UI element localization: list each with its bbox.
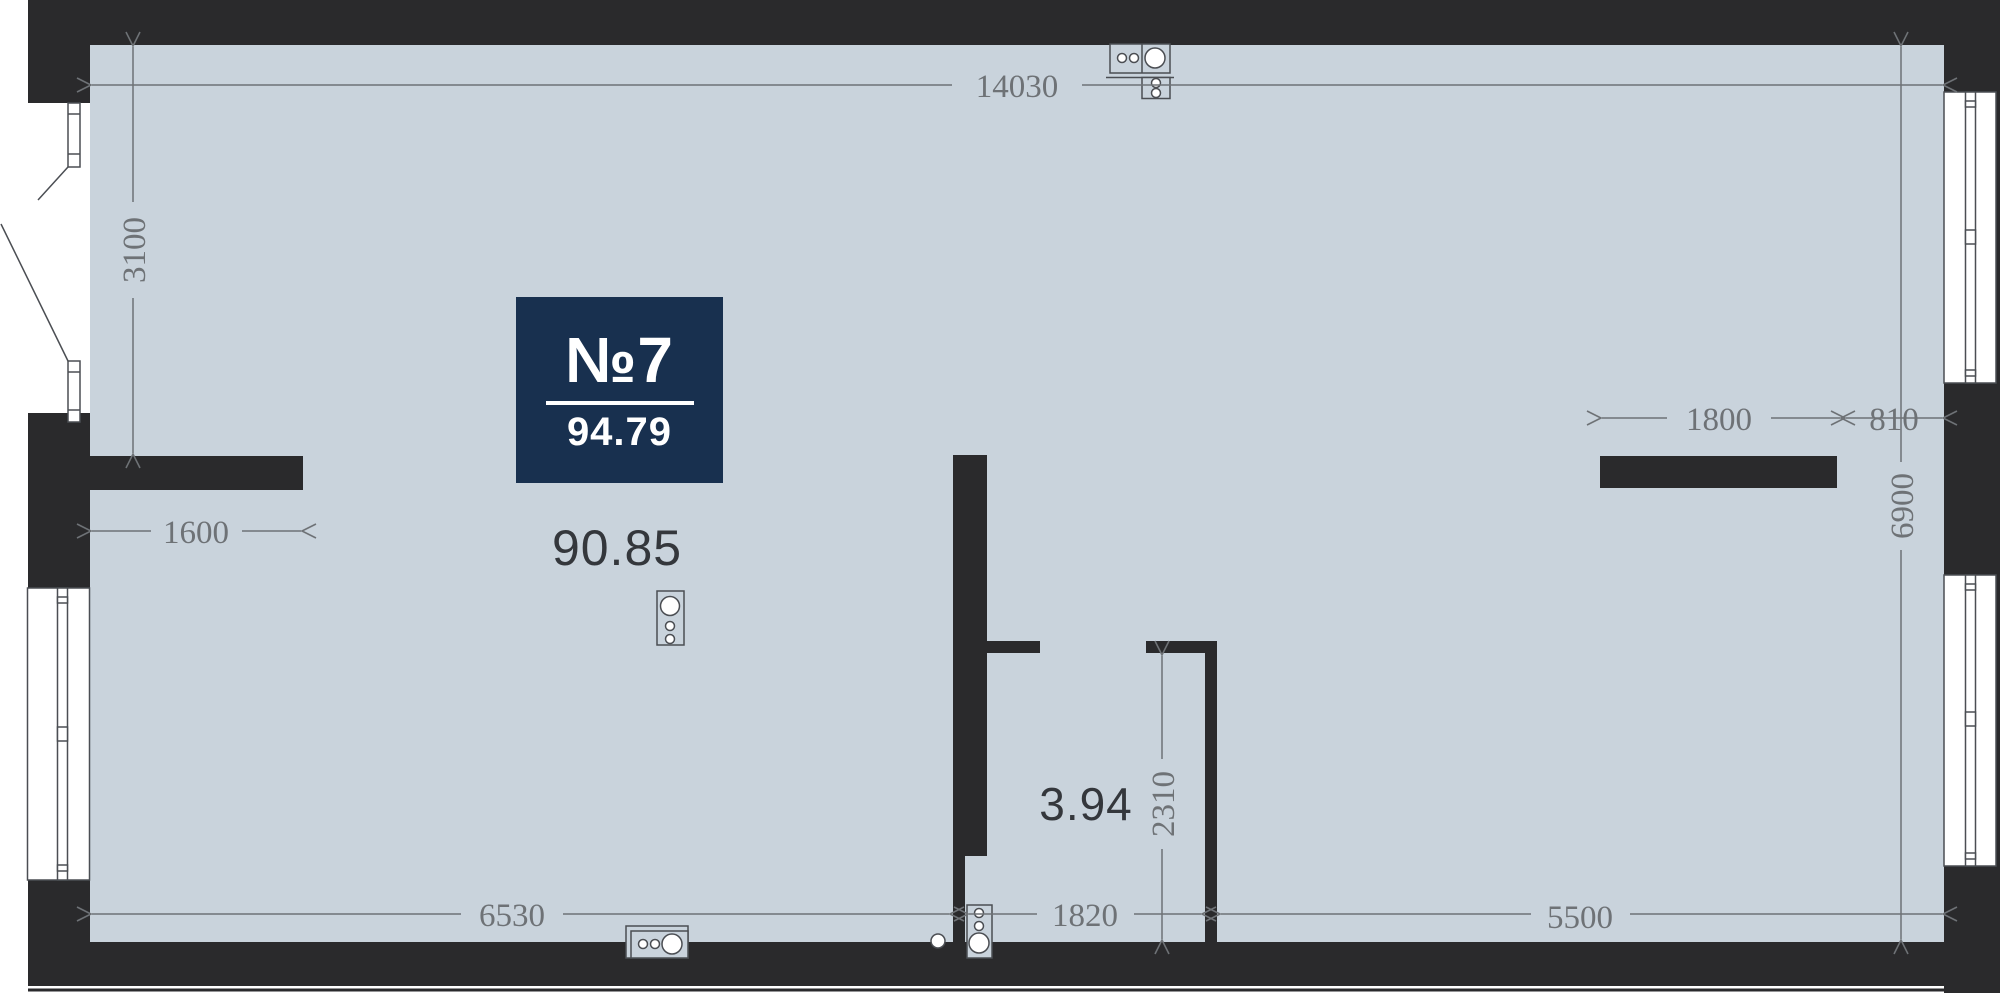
dim-wardrobe-width: 1800: [1686, 402, 1752, 438]
floor-area: [90, 45, 1944, 942]
dim-niche-width: 1600: [163, 515, 229, 551]
floor-plan: 14030 3100 1600 6530 1820 5500 2310 1800…: [0, 0, 2000, 993]
stove-bottom-icon: [626, 926, 688, 958]
wall-bottom: [28, 942, 2000, 986]
room-area-main: 90.85: [552, 519, 682, 577]
window-right-lower: [1944, 575, 1996, 866]
wall-hall-left-thin: [953, 856, 965, 942]
window-left: [28, 588, 90, 880]
dim-left-height: 3100: [117, 217, 153, 283]
dim-wardrobe-offset: 810: [1869, 402, 1919, 438]
door-leaf-lower: [1, 224, 68, 361]
unit-badge: №7 94.79: [516, 297, 723, 483]
utility-box-middle-icon: [657, 591, 684, 645]
unit-number: №7: [565, 328, 674, 392]
dim-bottom-center: 1820: [1052, 898, 1118, 934]
wall-left-middle: [28, 413, 90, 588]
wall-left-top: [28, 0, 90, 103]
wall-wardrobe: [1600, 456, 1837, 488]
wall-hall-right: [1205, 641, 1217, 942]
wall-left-bottom: [28, 880, 90, 986]
riser-bottom-icon: [967, 905, 992, 958]
unit-total-area: 94.79: [567, 412, 672, 452]
dim-hall-height: 2310: [1146, 771, 1182, 837]
wall-hall-top-left-stub: [987, 641, 1040, 653]
window-right-upper: [1944, 92, 1996, 383]
balcony-door: [1, 103, 80, 422]
floor-plan-drawing: 14030 3100 1600 6530 1820 5500 2310 1800…: [0, 0, 2000, 993]
door-leaf-upper: [38, 167, 68, 200]
dim-right-height: 6900: [1885, 473, 1921, 539]
dim-bottom-left: 6530: [479, 898, 545, 934]
wall-bottom-outer-line: [28, 989, 1994, 992]
badge-divider: [546, 401, 694, 405]
wall-top: [28, 0, 2000, 45]
wall-hall-left-thick: [953, 455, 987, 856]
wall-niche-stub: [90, 456, 303, 490]
room-area-hall: 3.94: [1039, 777, 1133, 831]
dim-bottom-right: 5500: [1547, 900, 1613, 936]
outlet-icon: [931, 934, 945, 948]
dim-top-width: 14030: [976, 69, 1059, 105]
